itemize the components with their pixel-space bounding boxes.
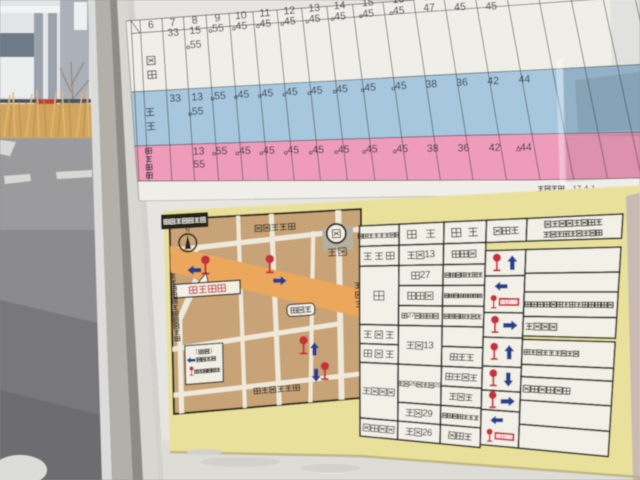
svg-text:45: 45: [287, 144, 299, 156]
svg-text:45: 45: [336, 83, 348, 96]
svg-text:45: 45: [454, 1, 467, 14]
svg-text:45: 45: [263, 145, 275, 157]
svg-text:45: 45: [259, 17, 272, 30]
svg-text:55: 55: [192, 105, 204, 118]
svg-text:6: 6: [427, 428, 433, 439]
svg-text:45: 45: [237, 88, 249, 101]
svg-text:13: 13: [193, 145, 205, 157]
svg-text:45: 45: [395, 80, 407, 93]
svg-text:45: 45: [364, 81, 376, 94]
svg-text:55: 55: [216, 145, 228, 157]
svg-text:45: 45: [286, 86, 298, 99]
svg-text:55: 55: [193, 158, 205, 170]
svg-text:38: 38: [427, 143, 439, 155]
svg-text:45: 45: [396, 143, 408, 155]
svg-text:42: 42: [489, 142, 501, 154]
svg-text:13: 13: [191, 91, 203, 104]
svg-text:3: 3: [428, 340, 434, 351]
svg-text:42: 42: [487, 75, 499, 88]
svg-text:44: 44: [518, 73, 530, 86]
svg-text:45: 45: [308, 13, 321, 26]
svg-text:44: 44: [520, 141, 532, 153]
svg-text:45: 45: [334, 10, 347, 23]
svg-text:45: 45: [284, 15, 297, 28]
svg-text:6: 6: [148, 19, 155, 31]
svg-text:N: N: [185, 228, 189, 234]
svg-text:45: 45: [235, 20, 248, 33]
svg-text:9: 9: [427, 408, 433, 419]
svg-text:55: 55: [214, 90, 226, 103]
svg-text:47: 47: [423, 2, 436, 15]
svg-text:3: 3: [429, 249, 435, 260]
svg-text:36: 36: [456, 76, 468, 89]
svg-text:45: 45: [362, 7, 375, 20]
svg-text:45: 45: [393, 4, 406, 17]
svg-text:45: 45: [261, 87, 273, 100]
svg-text:15: 15: [189, 24, 202, 37]
svg-text:55: 55: [212, 22, 225, 35]
svg-text:33: 33: [169, 92, 181, 105]
svg-text:45: 45: [366, 143, 378, 155]
svg-text:45: 45: [311, 84, 323, 97]
svg-text:7: 7: [425, 270, 431, 281]
svg-text:38: 38: [425, 78, 437, 91]
svg-text:33: 33: [167, 26, 180, 39]
svg-text:55: 55: [189, 38, 202, 51]
svg-text:45: 45: [485, 0, 498, 13]
svg-text:45: 45: [312, 144, 324, 156]
svg-text:36: 36: [458, 142, 470, 154]
svg-text:7: 7: [411, 312, 415, 319]
svg-text:45: 45: [338, 144, 350, 156]
svg-text:45: 45: [239, 145, 251, 157]
svg-text:6: 6: [413, 381, 417, 388]
